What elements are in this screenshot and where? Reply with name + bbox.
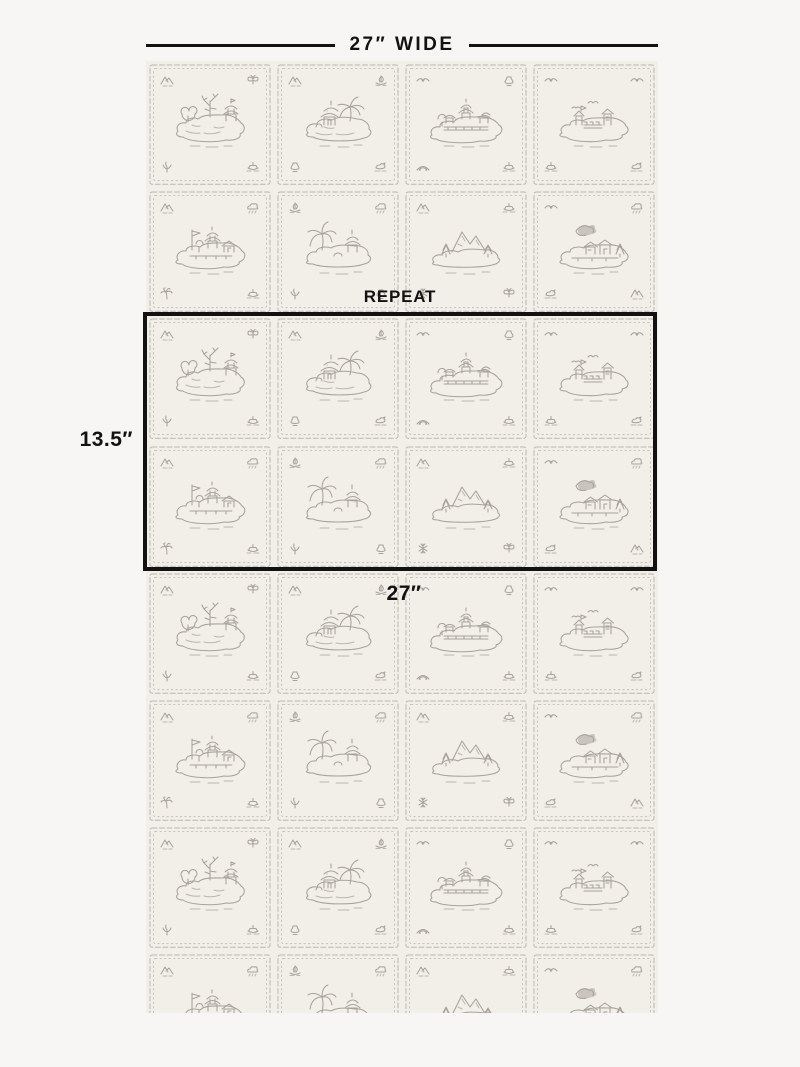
center-motif-pagoda-with-banner (176, 736, 245, 783)
width-dimension-header: 27″ WIDE (146, 33, 658, 57)
wallpaper-swatch (146, 61, 658, 1013)
corner-motif-urn-icon (291, 417, 299, 425)
pattern-tile-weeping-tree-pagoda (274, 951, 402, 1013)
tile-border (278, 828, 398, 947)
corner-motif-mountain-icon (161, 840, 173, 849)
corner-motif-duck-icon (631, 163, 642, 171)
corner-motif-cloud-icon (632, 713, 642, 722)
corner-motif-mountain-icon (631, 799, 643, 808)
pattern-tile-village-with-bird (530, 188, 658, 315)
corner-motif-boat-icon (503, 926, 515, 934)
pattern-tile-village-with-bird (530, 697, 658, 824)
corner-motif-boat-icon (247, 798, 259, 806)
corner-motif-sailboat-icon (290, 458, 300, 467)
tile-border (278, 319, 398, 438)
pattern-tile-island-bare-tree-pagoda (146, 824, 274, 951)
corner-motif-mountain-icon (161, 77, 173, 86)
corner-motif-boat-icon (247, 162, 259, 170)
corner-motif-mountain-icon (161, 204, 173, 213)
corner-motif-boat-icon (503, 204, 515, 212)
corner-motif-boat-icon (545, 671, 557, 679)
center-motif-grand-pagoda (431, 353, 502, 401)
pattern-tile-mountain-pines (402, 443, 530, 570)
corner-motif-butterfly-icon (248, 330, 258, 338)
tile-border (406, 955, 526, 1013)
corner-motif-mountain-icon (289, 840, 301, 849)
tile-border (150, 828, 270, 947)
pattern-tile-island-bare-tree-pagoda (146, 570, 274, 697)
corner-motif-plant-icon (163, 925, 171, 935)
tile-border (278, 955, 398, 1013)
corner-motif-butterfly-icon (248, 839, 258, 847)
corner-motif-bird-icon (631, 333, 643, 336)
corner-motif-cloud-icon (376, 713, 386, 722)
corner-motif-butterfly-icon (504, 289, 514, 297)
corner-motif-mountain-icon (289, 586, 301, 595)
corner-motif-cloud-icon (376, 967, 386, 976)
corner-motif-bird-icon (631, 587, 643, 590)
pattern-tile-grand-pagoda (402, 824, 530, 951)
corner-motif-urn-icon (291, 926, 299, 934)
corner-motif-boat-icon (545, 417, 557, 425)
center-motif-mountain-pines (433, 741, 500, 783)
corner-motif-bird-icon (545, 333, 557, 336)
center-motif-grand-pagoda (431, 99, 502, 147)
corner-motif-mountain-icon (631, 290, 643, 299)
center-motif-weeping-tree-pagoda (307, 477, 371, 529)
center-motif-village-with-bird (560, 734, 628, 783)
dimension-rule-left (146, 44, 335, 47)
corner-motif-snowflake-icon (419, 798, 427, 807)
corner-motif-mountain-icon (161, 713, 173, 722)
corner-motif-boat-icon (503, 458, 515, 466)
corner-motif-duck-icon (631, 926, 642, 934)
corner-motif-cloud-icon (248, 967, 258, 976)
pattern-tile-pagoda-with-banner (146, 697, 274, 824)
corner-motif-boat-icon (247, 926, 259, 934)
corner-motif-bird-icon (545, 969, 557, 972)
corner-motif-urn-icon (377, 799, 385, 807)
center-motif-grand-pagoda (431, 862, 502, 910)
corner-motif-palm-icon (161, 797, 172, 808)
corner-motif-butterfly-icon (248, 584, 258, 592)
corner-motif-urn-icon (291, 163, 299, 171)
pattern-tile-weeping-tree-pagoda (274, 443, 402, 570)
corner-motif-butterfly-icon (248, 75, 258, 83)
corner-motif-bird-icon (417, 842, 429, 845)
tile-border (150, 192, 270, 311)
center-motif-island-bare-tree-pagoda (177, 94, 245, 147)
center-motif-village-with-bird (560, 225, 628, 274)
corner-motif-plant-icon (163, 162, 171, 172)
corner-motif-urn-icon (505, 840, 513, 848)
center-motif-pagoda-with-banner (176, 990, 245, 1013)
corner-motif-plant-icon (163, 416, 171, 426)
center-motif-weeping-tree-pagoda (307, 222, 371, 274)
center-motif-pagoda-with-willow (307, 351, 371, 401)
corner-motif-duck-icon (375, 163, 386, 171)
corner-motif-boat-icon (503, 671, 515, 679)
corner-motif-mountain-icon (289, 331, 301, 340)
corner-motif-palm-icon (161, 543, 172, 554)
center-motif-pagoda-with-willow (307, 97, 371, 147)
corner-motif-cloud-icon (632, 967, 642, 976)
pattern-tile-fortress-with-birds (530, 61, 658, 188)
corner-motif-boat-icon (545, 926, 557, 934)
repeat-width-label: 27″ (304, 582, 504, 606)
corner-motif-cloud-icon (632, 458, 642, 467)
center-motif-mountain-pines (433, 995, 500, 1013)
tile-border (278, 701, 398, 820)
pattern-tile-village-with-bird (530, 951, 658, 1013)
pattern-tile-weeping-tree-pagoda (274, 697, 402, 824)
center-motif-village-with-bird (560, 480, 628, 529)
corner-motif-cloud-icon (632, 204, 642, 213)
corner-motif-boat-icon (503, 967, 515, 975)
pattern-tile-island-bare-tree-pagoda (146, 61, 274, 188)
center-motif-village-with-bird (560, 988, 628, 1013)
pattern-tile-fortress-with-birds (530, 315, 658, 442)
corner-motif-sailboat-icon (290, 712, 300, 721)
corner-motif-duck-icon (631, 417, 642, 425)
corner-motif-mountain-icon (417, 967, 429, 976)
corner-motif-plant-icon (291, 289, 299, 299)
corner-motif-mountain-icon (289, 77, 301, 86)
corner-motif-bird-icon (545, 842, 557, 845)
pattern-tile-pagoda-with-willow (274, 824, 402, 951)
pattern-tile-village-with-bird (530, 443, 658, 570)
corner-motif-bird-icon (545, 206, 557, 209)
corner-motif-butterfly-icon (504, 797, 514, 805)
center-motif-island-bare-tree-pagoda (177, 603, 245, 656)
pattern-tile-pagoda-with-willow (274, 315, 402, 442)
corner-motif-mountain-icon (161, 331, 173, 340)
corner-motif-plant-icon (291, 798, 299, 808)
pattern-tile-fortress-with-birds (530, 824, 658, 951)
corner-motif-plant-icon (291, 544, 299, 554)
center-motif-weeping-tree-pagoda (307, 985, 371, 1013)
corner-motif-boat-icon (503, 417, 515, 425)
pattern-tile-grand-pagoda (402, 315, 530, 442)
tile-border (534, 955, 654, 1013)
corner-motif-boat-icon (247, 671, 259, 679)
center-motif-grand-pagoda (431, 608, 502, 656)
corner-motif-sailboat-icon (290, 203, 300, 212)
pattern-tile-pagoda-with-banner (146, 188, 274, 315)
tile-border (150, 574, 270, 693)
corner-motif-duck-icon (375, 672, 386, 680)
corner-motif-bird-icon (631, 79, 643, 82)
corner-motif-duck-icon (545, 799, 556, 807)
corner-motif-cloud-icon (248, 458, 258, 467)
corner-motif-urn-icon (505, 586, 513, 594)
center-motif-pagoda-with-willow (307, 606, 371, 656)
corner-motif-bird-icon (545, 79, 557, 82)
corner-motif-duck-icon (375, 926, 386, 934)
corner-motif-mountain-icon (417, 713, 429, 722)
corner-motif-duck-icon (545, 545, 556, 553)
corner-motif-bird-icon (545, 715, 557, 718)
corner-motif-duck-icon (631, 672, 642, 680)
center-motif-pagoda-with-banner (176, 227, 245, 274)
corner-motif-mountain-icon (417, 459, 429, 468)
corner-motif-urn-icon (505, 77, 513, 85)
pattern-tile-grand-pagoda (402, 61, 530, 188)
repeat-label: REPEAT (300, 287, 500, 307)
corner-motif-duck-icon (375, 417, 386, 425)
center-motif-fortress-with-birds (560, 865, 628, 910)
pattern-tile-pagoda-with-banner (146, 443, 274, 570)
center-motif-fortress-with-birds (560, 101, 628, 146)
center-motif-pagoda-with-banner (176, 482, 245, 529)
corner-motif-mountain-icon (631, 545, 643, 554)
corner-motif-snowflake-icon (419, 544, 427, 553)
pattern-tile-mountain-pines (402, 697, 530, 824)
tile-border (278, 447, 398, 566)
pattern-tile-fortress-with-birds (530, 570, 658, 697)
pattern-tile-island-bare-tree-pagoda (146, 315, 274, 442)
center-motif-mountain-pines (433, 487, 500, 529)
corner-motif-bridge-icon (417, 930, 429, 934)
corner-motif-sailboat-icon (376, 839, 386, 848)
width-dimension-label: 27″ WIDE (349, 34, 454, 56)
corner-motif-bridge-icon (417, 166, 429, 170)
corner-motif-bird-icon (417, 333, 429, 336)
tile-border (150, 701, 270, 820)
corner-motif-cloud-icon (248, 204, 258, 213)
corner-motif-cloud-icon (376, 458, 386, 467)
corner-motif-sailboat-icon (290, 966, 300, 975)
corner-motif-bird-icon (545, 587, 557, 590)
center-motif-mountain-pines (433, 232, 500, 274)
corner-motif-butterfly-icon (504, 543, 514, 551)
corner-motif-bird-icon (631, 842, 643, 845)
tile-border (150, 65, 270, 184)
pattern-tile-mountain-pines (402, 951, 530, 1013)
center-motif-weeping-tree-pagoda (307, 731, 371, 783)
corner-motif-mountain-icon (161, 459, 173, 468)
corner-motif-mountain-icon (417, 204, 429, 213)
corner-motif-palm-icon (161, 288, 172, 299)
corner-motif-mountain-icon (161, 967, 173, 976)
center-motif-island-bare-tree-pagoda (177, 857, 245, 910)
pattern-tile-pagoda-with-banner (146, 951, 274, 1013)
center-motif-fortress-with-birds (560, 356, 628, 401)
dimension-rule-right (469, 44, 658, 47)
tile-border (150, 319, 270, 438)
corner-motif-duck-icon (545, 290, 556, 298)
tile-border (278, 65, 398, 184)
corner-motif-boat-icon (247, 544, 259, 552)
repeat-height-label: 13.5″ (28, 428, 133, 452)
corner-motif-boat-icon (503, 162, 515, 170)
corner-motif-bridge-icon (417, 421, 429, 425)
pattern-tile-pagoda-with-willow (274, 61, 402, 188)
corner-motif-boat-icon (247, 290, 259, 298)
corner-motif-boat-icon (545, 162, 557, 170)
corner-motif-sailboat-icon (376, 76, 386, 85)
corner-motif-plant-icon (163, 671, 171, 681)
corner-motif-boat-icon (247, 417, 259, 425)
corner-motif-bird-icon (417, 79, 429, 82)
corner-motif-boat-icon (503, 712, 515, 720)
corner-motif-mountain-icon (161, 586, 173, 595)
corner-motif-cloud-icon (376, 204, 386, 213)
corner-motif-cloud-icon (248, 713, 258, 722)
corner-motif-sailboat-icon (376, 330, 386, 339)
corner-motif-urn-icon (291, 672, 299, 680)
center-motif-island-bare-tree-pagoda (177, 348, 245, 401)
center-motif-pagoda-with-willow (307, 860, 371, 910)
corner-motif-bridge-icon (417, 675, 429, 679)
pattern-spec-page: 27″ WIDE REPEAT 13.5″ 27″ (0, 0, 800, 1067)
corner-motif-bird-icon (545, 460, 557, 463)
center-motif-fortress-with-birds (560, 610, 628, 655)
tile-border (150, 447, 270, 566)
corner-motif-urn-icon (505, 331, 513, 339)
corner-motif-urn-icon (377, 545, 385, 553)
